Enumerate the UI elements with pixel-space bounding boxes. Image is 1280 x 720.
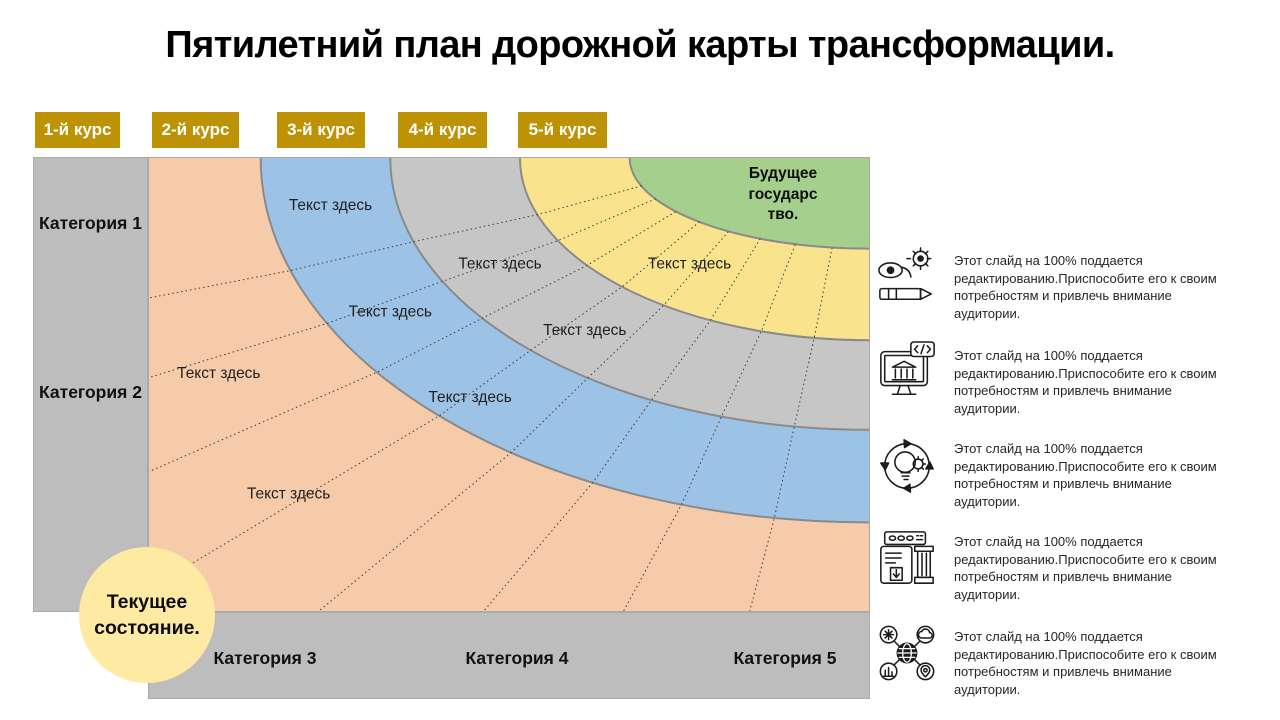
note-text: Этот слайд на 100% поддается редактирова… <box>954 341 1238 417</box>
course-button-2[interactable]: 2-й курс <box>152 112 239 148</box>
ring-label: Текст здесь <box>428 389 511 406</box>
ring-label: Текст здесь <box>648 256 731 273</box>
course-button-4[interactable]: 4-й курс <box>398 112 487 148</box>
ring-label: Текст здесь <box>349 303 432 320</box>
page-title: Пятилетний план дорожной карты трансформ… <box>0 24 1280 67</box>
globe-network-icon <box>876 622 938 684</box>
note-text: Этот слайд на 100% поддается редактирова… <box>954 434 1238 510</box>
slide: Пятилетний план дорожной карты трансформ… <box>0 0 1280 720</box>
lightbulb-gear-cycle-icon <box>876 434 938 496</box>
note-row: Этот слайд на 100% поддается редактирова… <box>876 434 1248 510</box>
note-row: Этот слайд на 100% поддается редактирова… <box>876 527 1248 603</box>
monitor-building-code-icon <box>876 341 938 403</box>
row-category-1: Категория 1 <box>39 213 147 234</box>
archive-column-icon <box>876 527 938 589</box>
roadmap-rings-svg: Текст здесь Текст здесь Текст здесь Текс… <box>149 158 869 611</box>
column-category-4: Категория 4 <box>466 648 569 669</box>
note-text: Этот слайд на 100% поддается редактирова… <box>954 246 1238 322</box>
ring-label: Текст здесь <box>289 197 372 214</box>
future-state-label: Будущее государс тво. <box>715 164 851 226</box>
row-category-panel: Категория 1 Категория 2 <box>33 157 148 612</box>
ring-label: Текст здесь <box>247 486 330 503</box>
roadmap-diagram: Текст здесь Текст здесь Текст здесь Текс… <box>148 157 870 612</box>
ring-label: Текст здесь <box>177 365 260 382</box>
note-row: Этот слайд на 100% поддается редактирова… <box>876 341 1248 417</box>
current-state-badge: Текущее состояние. <box>79 547 215 683</box>
row-category-2: Категория 2 <box>39 382 147 403</box>
note-text: Этот слайд на 100% поддается редактирова… <box>954 622 1238 698</box>
column-category-panel: Категория 3 Категория 4 Категория 5 <box>148 612 870 699</box>
ring-label: Текст здесь <box>458 256 541 273</box>
course-button-1[interactable]: 1-й курс <box>35 112 120 148</box>
column-category-3: Категория 3 <box>214 648 317 669</box>
note-row: Этот слайд на 100% поддается редактирова… <box>876 622 1248 698</box>
note-text: Этот слайд на 100% поддается редактирова… <box>954 527 1238 603</box>
vision-gear-pencil-icon <box>876 246 938 308</box>
course-button-5[interactable]: 5-й курс <box>518 112 607 148</box>
ring-label: Текст здесь <box>543 322 626 339</box>
note-row: Этот слайд на 100% поддается редактирова… <box>876 246 1248 322</box>
column-category-5: Категория 5 <box>734 648 837 669</box>
course-button-3[interactable]: 3-й курс <box>277 112 365 148</box>
